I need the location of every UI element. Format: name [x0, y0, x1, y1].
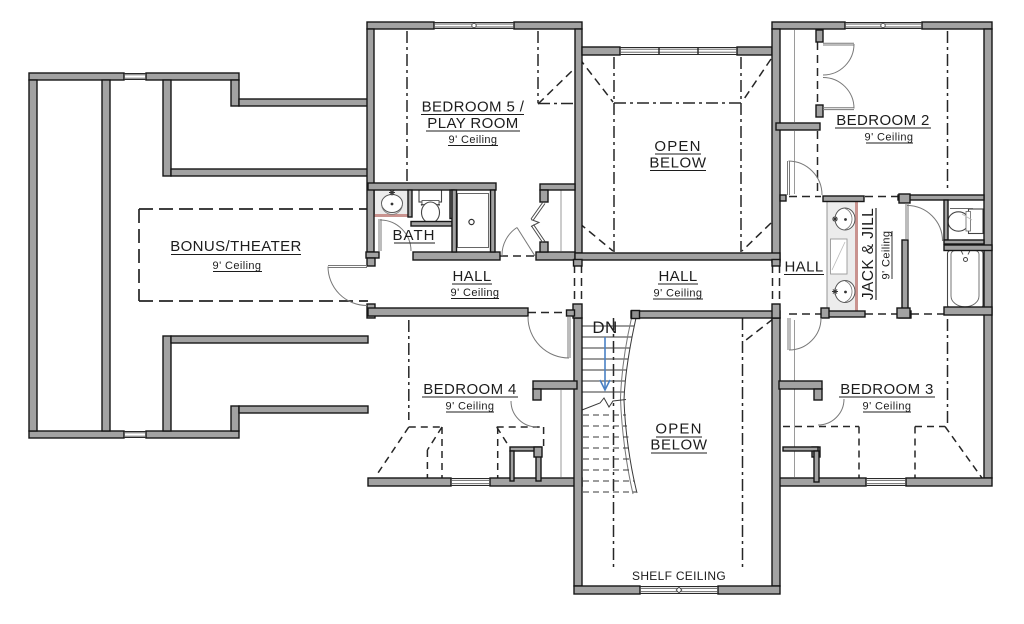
svg-text:PLAY ROOM: PLAY ROOM — [427, 115, 518, 132]
svg-text:JACK & JILL: JACK & JILL — [860, 208, 877, 300]
svg-text:HALL: HALL — [784, 259, 823, 276]
svg-text:9' Ceiling: 9' Ceiling — [865, 132, 914, 144]
svg-text:BEDROOM 3: BEDROOM 3 — [840, 381, 934, 398]
svg-text:9' Ceiling: 9' Ceiling — [863, 401, 912, 413]
svg-text:BEDROOM 4: BEDROOM 4 — [423, 381, 517, 398]
svg-text:BEDROOM 2: BEDROOM 2 — [836, 112, 930, 129]
svg-text:BELOW: BELOW — [649, 155, 706, 172]
svg-text:BONUS/THEATER: BONUS/THEATER — [170, 238, 302, 255]
svg-text:SHELF CEILING: SHELF CEILING — [632, 569, 726, 583]
svg-text:9' Ceiling: 9' Ceiling — [446, 401, 495, 413]
svg-text:HALL: HALL — [658, 268, 697, 285]
svg-text:HALL: HALL — [452, 268, 491, 285]
svg-text:DN: DN — [592, 318, 617, 337]
svg-text:9' Ceiling: 9' Ceiling — [213, 260, 262, 272]
svg-text:9' Ceiling: 9' Ceiling — [451, 287, 500, 299]
svg-text:9' Ceiling: 9' Ceiling — [449, 134, 498, 146]
svg-text:BELOW: BELOW — [650, 437, 707, 454]
svg-text:9' Ceiling: 9' Ceiling — [654, 288, 703, 300]
svg-text:BATH: BATH — [393, 227, 436, 244]
svg-text:9' Ceiling: 9' Ceiling — [881, 231, 893, 280]
svg-text:BEDROOM 5 /: BEDROOM 5 / — [422, 99, 525, 116]
svg-text:OPEN: OPEN — [655, 421, 702, 438]
svg-text:OPEN: OPEN — [654, 138, 701, 155]
